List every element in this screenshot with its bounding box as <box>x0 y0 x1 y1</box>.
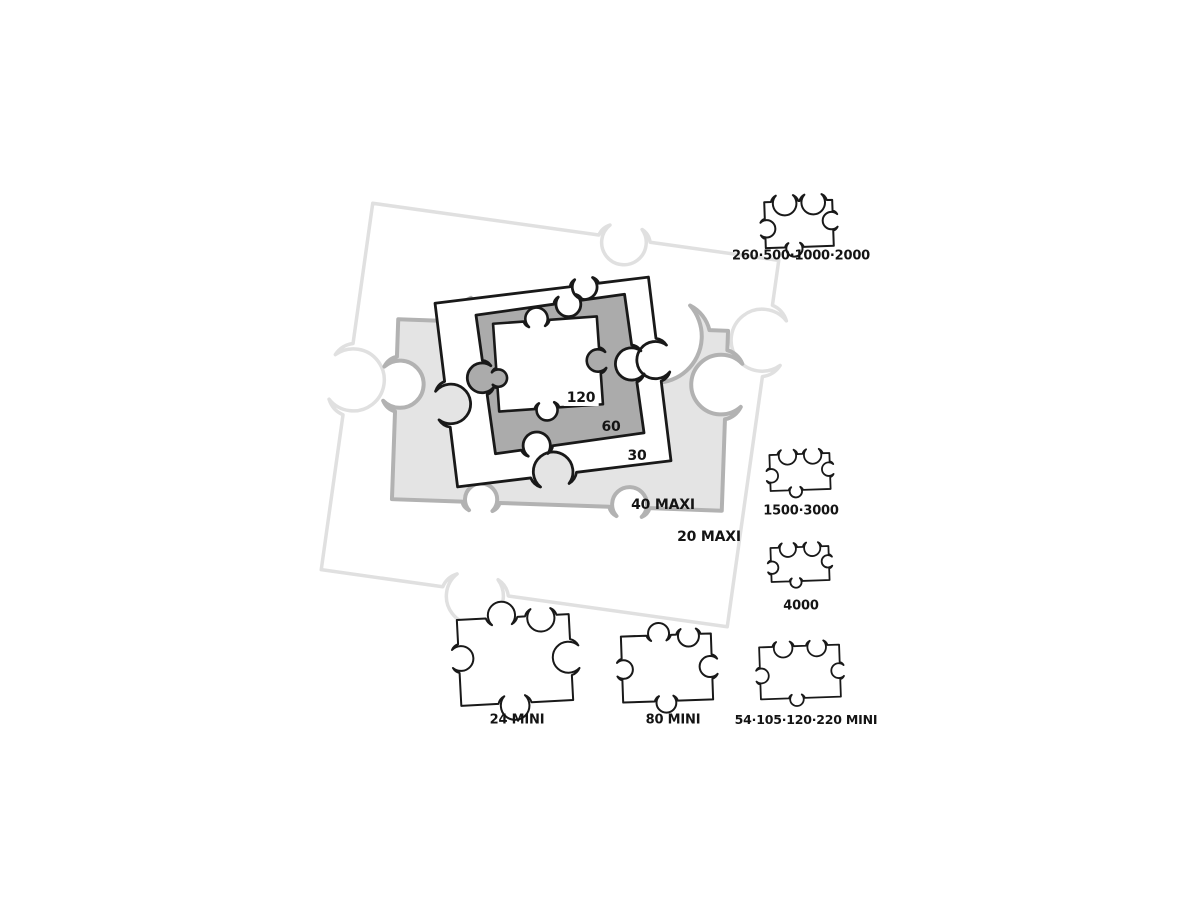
puzzle-piece-size-chart: 120 60 30 40 MAXI 20 MAXI 260·500·1000·2… <box>0 0 1200 900</box>
label-30-pieces: 30 <box>627 449 646 463</box>
puzzle-piece-p1500 <box>766 448 835 498</box>
puzzle-piece-mini54 <box>755 640 845 708</box>
label-40-maxi: 40 MAXI <box>631 498 695 512</box>
label-24-mini: 24 MINI <box>490 714 545 727</box>
puzzle-piece-p4000 <box>767 542 833 589</box>
label-4000: 4000 <box>783 600 818 613</box>
label-60-pieces: 60 <box>601 420 620 434</box>
label-120-pieces: 120 <box>564 390 599 406</box>
label-20-maxi: 20 MAXI <box>677 530 741 544</box>
label-260-500-1000-2000: 260·500·1000·2000 <box>732 250 870 263</box>
puzzle-piece-mini80 <box>616 621 719 714</box>
label-1500-3000: 1500·3000 <box>763 505 839 518</box>
label-54-105-120-220-mini: 54·105·120·220 MINI <box>735 714 878 727</box>
label-80-mini: 80 MINI <box>646 714 701 727</box>
puzzle-pieces-canvas <box>0 0 1200 900</box>
